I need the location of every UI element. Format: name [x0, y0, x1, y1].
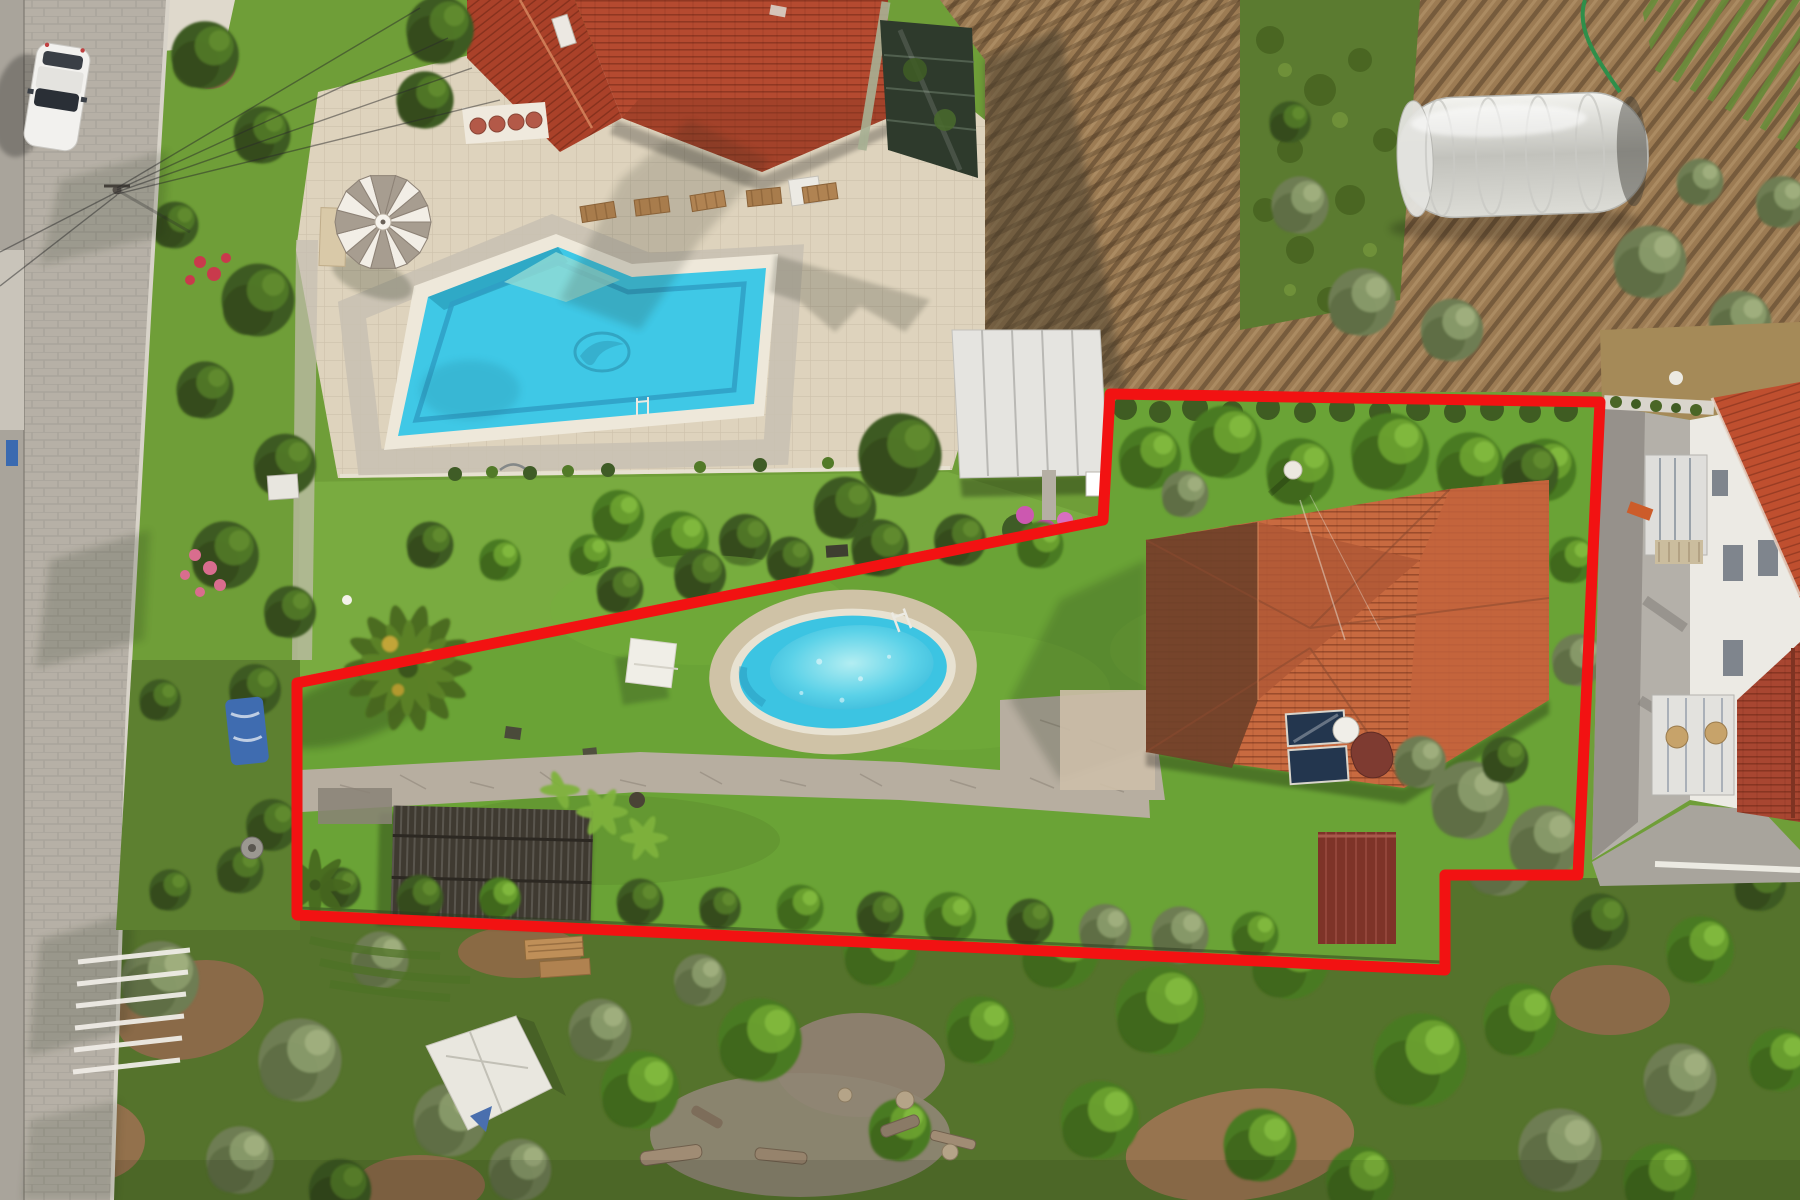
aerial-photo — [0, 0, 1800, 1200]
patio-decor-circles — [462, 102, 549, 144]
villa-roof-shaded — [1146, 522, 1258, 768]
blue-tarp-table — [225, 696, 270, 766]
garage-red-roof — [1318, 832, 1396, 944]
carport-awning — [952, 330, 1108, 520]
stone-pillar — [1042, 470, 1056, 520]
meter-box — [1086, 472, 1101, 496]
roadside-garden — [116, 660, 300, 930]
villa-chimney — [1284, 461, 1302, 479]
blue-sign — [6, 440, 18, 466]
striped-parasol — [335, 176, 431, 269]
dog — [629, 792, 645, 808]
scene-canvas — [0, 0, 1800, 1200]
satellite-dish — [1333, 717, 1359, 743]
garden-shed-small — [267, 474, 299, 500]
greenhouse-tunnel — [1385, 91, 1651, 245]
balcony-lower — [1652, 695, 1734, 795]
lean-to — [318, 788, 392, 824]
